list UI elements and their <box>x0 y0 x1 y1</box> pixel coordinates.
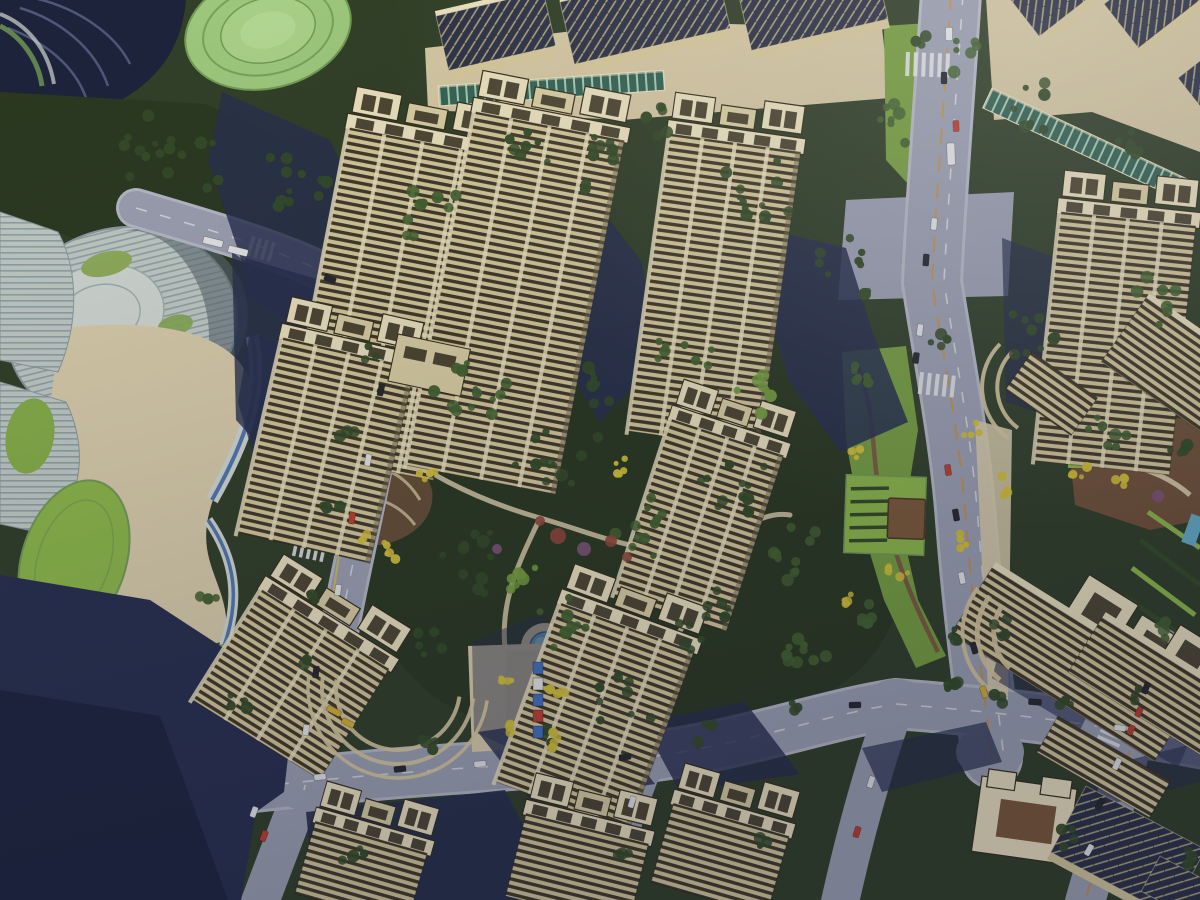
aerial-masterplan-rendering <box>0 0 1200 900</box>
vignette-overlay <box>0 0 1200 900</box>
photo-of-architectural-model <box>0 0 1200 900</box>
